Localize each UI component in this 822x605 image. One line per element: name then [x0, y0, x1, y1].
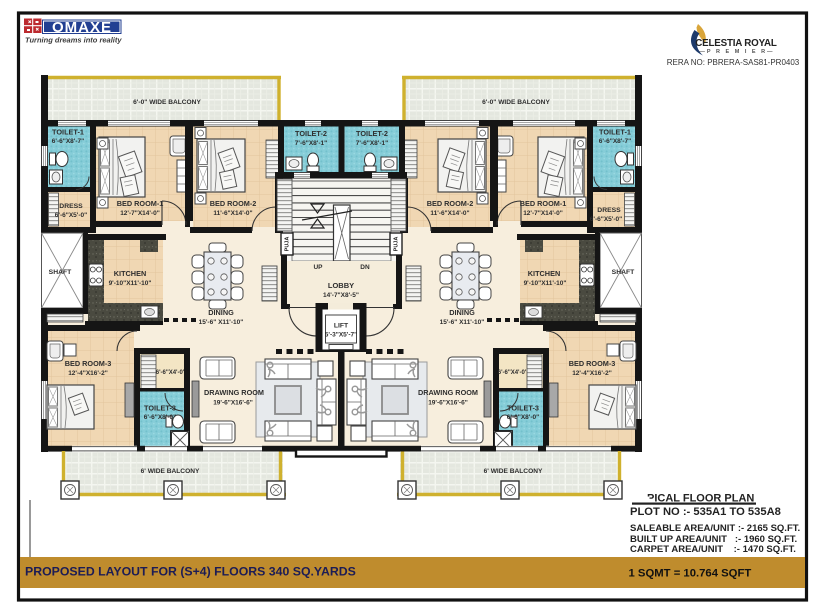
svg-text:DINING: DINING	[449, 308, 475, 317]
svg-text:DRESS: DRESS	[59, 203, 83, 210]
svg-text:6'-6"X8'-0": 6'-6"X8'-0"	[144, 414, 176, 421]
svg-text:KITCHEN: KITCHEN	[114, 269, 146, 278]
svg-text:6' WIDE BALCONY: 6' WIDE BALCONY	[484, 468, 543, 475]
svg-text:UP: UP	[313, 264, 323, 271]
svg-text:TOILET-3: TOILET-3	[507, 404, 539, 413]
svg-text:7'-6"X8'-1": 7'-6"X8'-1"	[295, 140, 327, 147]
svg-text:BED ROOM-1: BED ROOM-1	[520, 199, 567, 208]
svg-text:6'-6"X5'-0": 6'-6"X5'-0"	[55, 212, 87, 219]
svg-text:TOILET-2: TOILET-2	[295, 129, 327, 138]
svg-text:PROPOSED LAYOUT FOR (S+4) FLOO: PROPOSED LAYOUT FOR (S+4) FLOORS 340 SQ.…	[25, 565, 356, 579]
svg-text:6'-0" WIDE BALCONY: 6'-0" WIDE BALCONY	[133, 99, 201, 106]
svg-text:BED ROOM-1: BED ROOM-1	[117, 199, 164, 208]
svg-text:12'-4"X16'-2": 12'-4"X16'-2"	[68, 370, 108, 377]
svg-text:BED ROOM-3: BED ROOM-3	[569, 359, 616, 368]
svg-text:6' WIDE BALCONY: 6' WIDE BALCONY	[141, 468, 200, 475]
svg-text:CARPET AREA/UNIT :- 1470 S: CARPET AREA/UNIT :- 1470 SQ.FT.	[630, 544, 796, 555]
svg-text:7'-6"X8'-1": 7'-6"X8'-1"	[356, 140, 388, 147]
svg-text:6'-6''X4'-0': 6'-6''X4'-0'	[498, 370, 527, 376]
svg-text:11'-6"X14'-0": 11'-6"X14'-0"	[430, 210, 469, 217]
svg-text:SALEABLE AREA/UNIT :- 2165 SQ.: SALEABLE AREA/UNIT :- 2165 SQ.FT.	[630, 523, 800, 534]
svg-text:KITCHEN: KITCHEN	[528, 269, 560, 278]
svg-text:14'-7"X8'-5": 14'-7"X8'-5"	[323, 292, 359, 299]
svg-text:OMAXE: OMAXE	[52, 19, 112, 36]
svg-text:1 SQMT = 10.764 SQFT: 1 SQMT = 10.764 SQFT	[629, 568, 752, 580]
svg-text:9'-10"X11'-10": 9'-10"X11'-10"	[524, 280, 567, 287]
svg-text:DRESS: DRESS	[597, 207, 621, 214]
svg-text:LIFT: LIFT	[334, 323, 349, 330]
svg-text:15'-6" X11'-10": 15'-6" X11'-10"	[199, 319, 244, 326]
svg-text:15'-6" X11'-10": 15'-6" X11'-10"	[440, 319, 485, 326]
svg-text:DN: DN	[360, 264, 370, 271]
svg-text:PUJA: PUJA	[394, 237, 400, 252]
svg-text:12'-7"X14'-0": 12'-7"X14'-0"	[523, 210, 563, 217]
svg-text:9'-10"X11'-10": 9'-10"X11'-10"	[109, 280, 152, 287]
svg-text:5'-3"X5'-7": 5'-3"X5'-7"	[325, 332, 357, 339]
svg-text:PUJA: PUJA	[285, 237, 291, 252]
svg-text:6'-6"X8'-7": 6'-6"X8'-7"	[599, 138, 631, 145]
svg-text:6'-6''X4'-0': 6'-6''X4'-0'	[156, 370, 185, 376]
svg-text:SHAFT: SHAFT	[612, 269, 636, 276]
svg-text:—P R E M I E R—: —P R E M I E R—	[699, 49, 774, 55]
svg-text:19'-6"X16'-6": 19'-6"X16'-6"	[213, 400, 253, 407]
svg-text:DINING: DINING	[208, 308, 234, 317]
svg-text:6'-6"X5'-0": 6'-6"X5'-0"	[590, 216, 622, 223]
svg-text:BED ROOM-2: BED ROOM-2	[210, 199, 257, 208]
svg-text:Turning dreams into reality: Turning dreams into reality	[25, 36, 122, 45]
svg-text:6'-0" WIDE BALCONY: 6'-0" WIDE BALCONY	[482, 99, 550, 106]
svg-text:6'-6"X8'-0": 6'-6"X8'-0"	[507, 414, 539, 421]
svg-text:TOILET-3: TOILET-3	[144, 404, 176, 413]
svg-text:DRAWING ROOM: DRAWING ROOM	[204, 388, 264, 397]
svg-text:LOBBY: LOBBY	[328, 281, 354, 290]
svg-text:DRAWING ROOM: DRAWING ROOM	[418, 388, 478, 397]
svg-text:SHAFT: SHAFT	[49, 269, 73, 276]
svg-text:19'-6"X16'-6": 19'-6"X16'-6"	[428, 400, 468, 407]
svg-text:CELESTIA ROYAL: CELESTIA ROYAL	[695, 38, 777, 49]
svg-text:PLOT NO :- 535A1 TO 535A8: PLOT NO :- 535A1 TO 535A8	[630, 506, 781, 518]
svg-text:BED ROOM-3: BED ROOM-3	[65, 359, 112, 368]
svg-text:TOILET-1: TOILET-1	[52, 128, 84, 137]
svg-text:11'-6"X14'-0": 11'-6"X14'-0"	[213, 210, 252, 217]
svg-text:12'-7"X14'-0": 12'-7"X14'-0"	[120, 210, 160, 217]
svg-text:RERA NO: PBRERA-SAS81-PR0403: RERA NO: PBRERA-SAS81-PR0403	[667, 58, 800, 67]
svg-text:12'-4"X16'-2": 12'-4"X16'-2"	[572, 370, 612, 377]
svg-text:BED ROOM-2: BED ROOM-2	[427, 199, 474, 208]
svg-text:TOILET-1: TOILET-1	[599, 128, 631, 137]
svg-text:TOILET-2: TOILET-2	[356, 129, 388, 138]
svg-text:6'-6"X8'-7": 6'-6"X8'-7"	[52, 138, 84, 145]
